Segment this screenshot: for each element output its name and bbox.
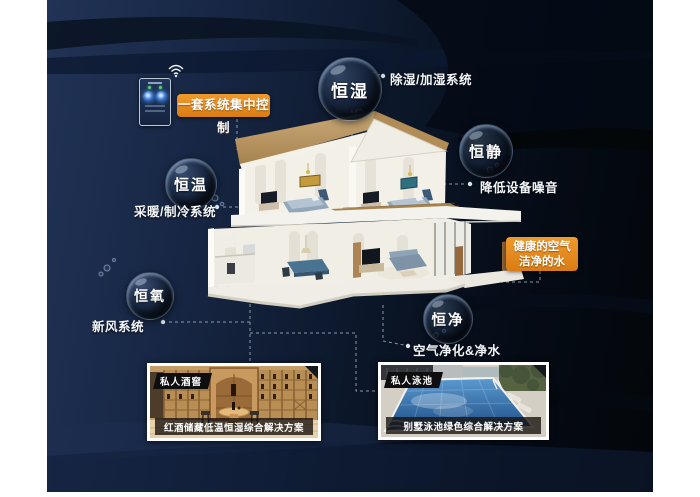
bubble-constant-humidity: 恒湿 (318, 57, 382, 121)
bubble-constant-purity: 恒净 (423, 294, 473, 344)
callout-line1: 健康的空气 (506, 240, 578, 255)
photo-tag: 私人泳池 (384, 372, 443, 388)
panel-row (145, 110, 165, 112)
label-heating-cooling-system: 采暖/制冷系统 (134, 201, 216, 220)
label-dehumidify-system: 除湿/加湿系统 (390, 69, 472, 88)
bubble-label: 恒氧 (134, 286, 166, 306)
photo-tag-text: 私人酒窖 (160, 374, 202, 388)
bubble-label: 恒静 (469, 141, 503, 162)
label-air-water-purification: 空气净化&净水 (413, 340, 501, 359)
photo-caption: 别墅泳池绿色综合解决方案 (386, 417, 541, 434)
bubble-label: 恒湿 (331, 77, 369, 102)
panel-dial-icons (142, 91, 168, 102)
photo-caption: 红酒储藏低温恒湿综合解决方案 (155, 418, 313, 435)
wifi-icon (167, 62, 185, 78)
label-fresh-air-system: 新风系统 (92, 316, 144, 335)
wine-cellar-photo: 私人酒窖 红酒储藏低温恒湿综合解决方案 (147, 363, 321, 441)
label-noise-reduction: 降低设备噪音 (480, 177, 558, 196)
central-control-callout: 一套系统集中控制 (177, 94, 270, 117)
bubble-constant-quiet: 恒静 (459, 124, 513, 178)
bubble-constant-oxygen: 恒氧 (126, 272, 174, 320)
healthy-air-water-callout: 健康的空气 洁净的水 (506, 237, 578, 271)
photo-corner-ribbon (533, 365, 546, 378)
photo-tag: 私人酒窖 (153, 373, 212, 389)
bubble-label: 恒净 (432, 309, 465, 330)
bubble-label: 恒温 (174, 174, 208, 195)
smart-control-panel (139, 78, 171, 126)
callout-line2: 洁净的水 (506, 255, 578, 270)
infographic-canvas: 一套系统集中控制 健康的空气 洁净的水 恒湿 恒静 恒温 恒氧 恒净 除湿/加湿… (47, 0, 653, 492)
pool-photo: 私人泳池 别墅泳池绿色综合解决方案 (378, 362, 549, 440)
page: 一套系统集中控制 健康的空气 洁净的水 恒湿 恒静 恒温 恒氧 恒净 除湿/加湿… (0, 0, 700, 497)
panel-row (145, 105, 165, 107)
photo-tag-text: 私人泳池 (391, 373, 433, 387)
photo-corner-ribbon (305, 366, 318, 379)
panel-status-lights (144, 86, 166, 89)
panel-title-bar (148, 82, 162, 84)
